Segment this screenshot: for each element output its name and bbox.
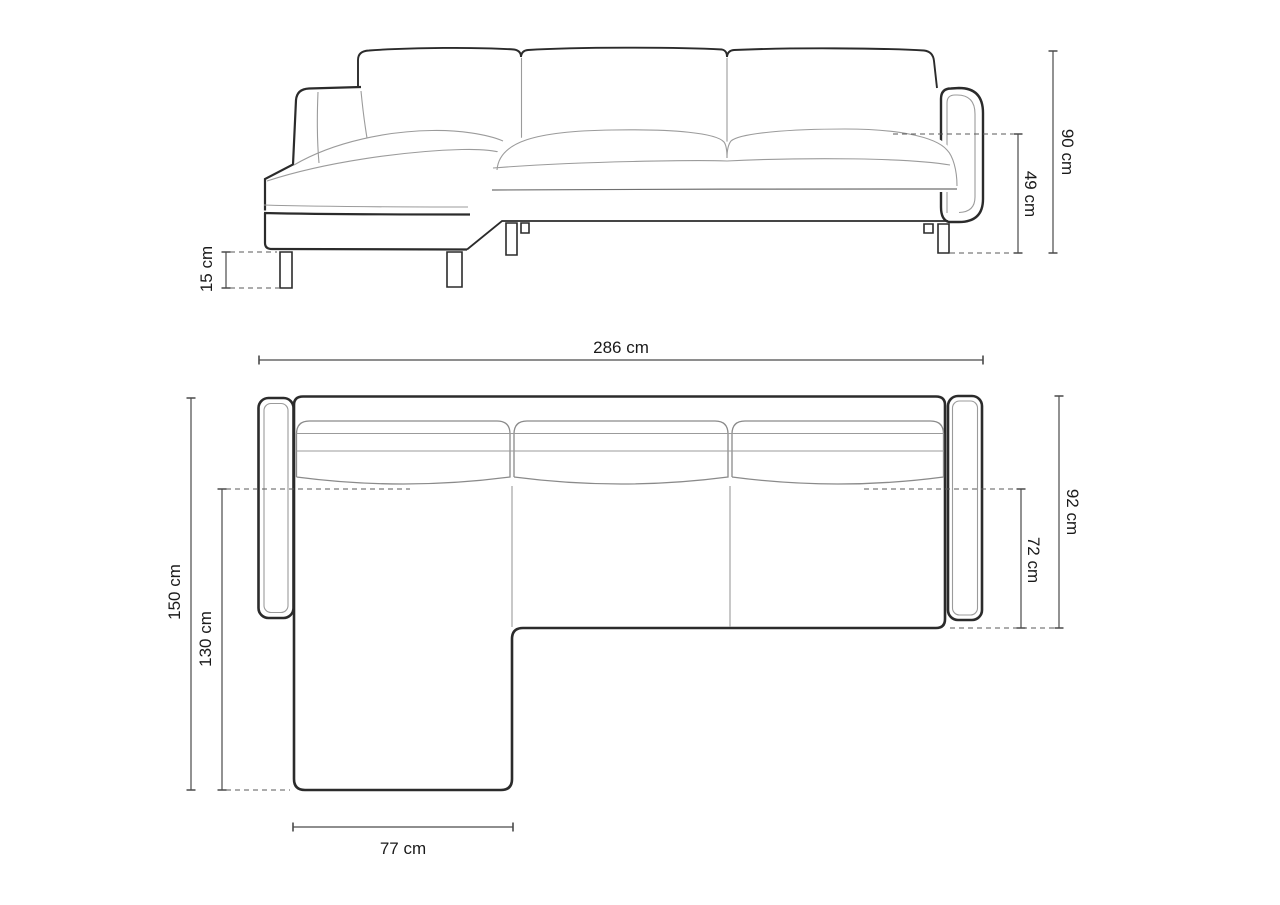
- elevation-view: [264, 48, 983, 288]
- dimension-leg-height-dashes: [230, 252, 281, 288]
- plan-body-outline: [294, 397, 945, 791]
- leg-mid-rear-back: [521, 223, 529, 233]
- dimension-chaise-width: 77 cm: [293, 823, 513, 859]
- backrest-left-edge-seam: [361, 91, 367, 138]
- dimension-chaise-depth-label: 130 cm: [196, 611, 215, 667]
- dimension-total-height-label: 90 cm: [1058, 129, 1077, 175]
- dimension-chaise-width-label: 77 cm: [380, 839, 426, 858]
- leg-front-left: [280, 252, 292, 288]
- leg-front-right: [447, 252, 462, 287]
- sofa-technical-drawing-page: 286 cm 90 cm 49 cm 15 cm 150 cm 130 cm 9…: [0, 0, 1280, 905]
- dimension-leg-height: 15 cm: [197, 246, 281, 292]
- main-base-edges: [467, 221, 948, 250]
- plan-right-armrest: [948, 396, 982, 620]
- leg-mid-rear: [506, 223, 517, 255]
- dimension-leg-height-label: 15 cm: [197, 246, 216, 292]
- dimension-total-depth-label: 150 cm: [165, 564, 184, 620]
- dimension-total-width-label: 286 cm: [593, 338, 649, 357]
- chaise-body-fill: [265, 86, 503, 250]
- leg-right-rear: [938, 224, 949, 253]
- dimension-total-depth: 150 cm: [165, 398, 196, 790]
- sofa-technical-drawing: 286 cm 90 cm 49 cm 15 cm 150 cm 130 cm 9…: [0, 0, 1280, 905]
- dimension-body-depth: 92 cm: [1055, 396, 1083, 628]
- dimension-total-width: 286 cm: [259, 338, 983, 365]
- dimension-seat-depth-label: 72 cm: [1024, 537, 1043, 583]
- dimension-seat-height-label: 49 cm: [1021, 171, 1040, 217]
- plan-view: [259, 396, 983, 790]
- leg-right-rear-back: [924, 224, 933, 233]
- dimension-body-depth-label: 92 cm: [1063, 489, 1082, 535]
- dimension-total-height: 90 cm: [1049, 51, 1078, 253]
